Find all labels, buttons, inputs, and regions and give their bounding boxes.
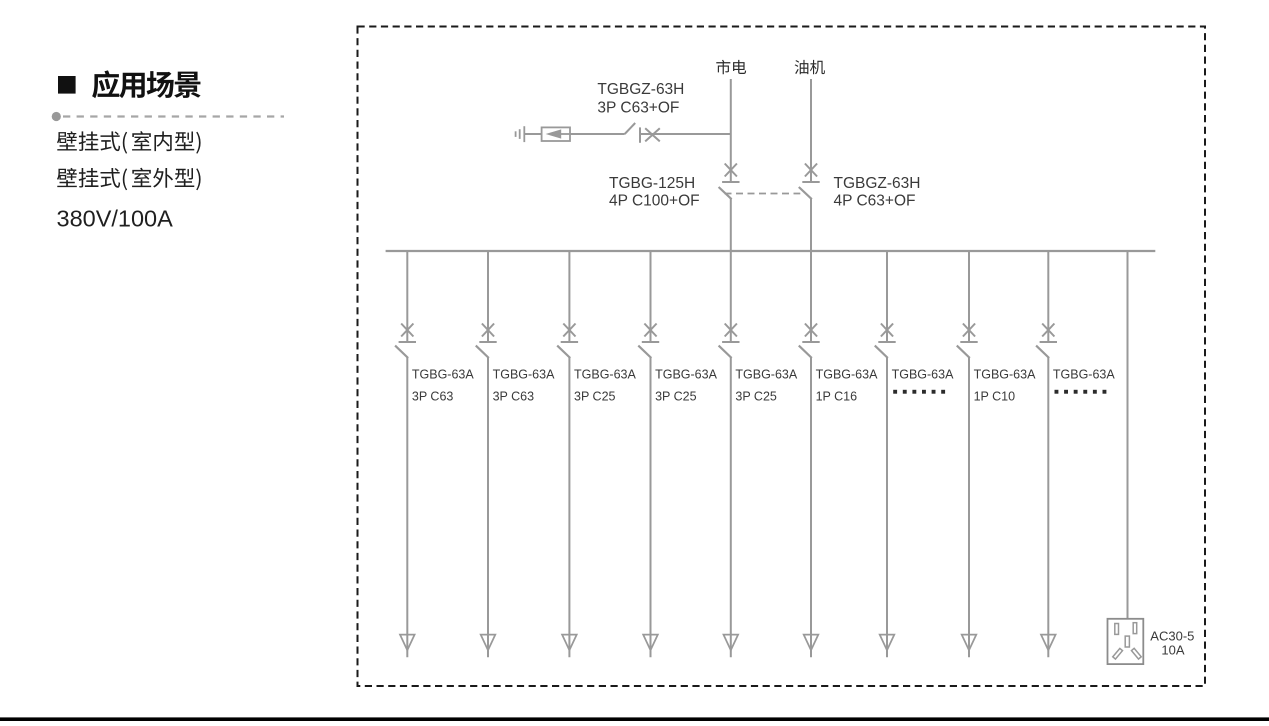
svg-text:4P C100+OF: 4P C100+OF — [609, 193, 700, 210]
svg-text:3P C63+OF: 3P C63+OF — [597, 100, 679, 117]
svg-text:TGBG-63A: TGBG-63A — [412, 367, 474, 381]
svg-text:1P C10: 1P C10 — [974, 389, 1016, 403]
svg-text:3P C25: 3P C25 — [655, 389, 697, 403]
svg-text:TGBG-63A: TGBG-63A — [735, 367, 797, 381]
svg-text:3P C25: 3P C25 — [574, 389, 616, 403]
svg-text:TGBG-63A: TGBG-63A — [493, 367, 555, 381]
svg-text:TGBG-63A: TGBG-63A — [574, 367, 636, 381]
svg-text:TGBGZ-63H: TGBGZ-63H — [597, 81, 684, 98]
svg-text:380V/100A: 380V/100A — [57, 205, 174, 231]
svg-text:TGBG-63A: TGBG-63A — [655, 367, 717, 381]
svg-text:1P C16: 1P C16 — [816, 389, 858, 403]
svg-text:3P C25: 3P C25 — [735, 389, 777, 403]
svg-text:3P C63: 3P C63 — [412, 389, 454, 403]
svg-text:TGBG-63A: TGBG-63A — [1053, 367, 1115, 381]
svg-text:TGBG-63A: TGBG-63A — [816, 367, 878, 381]
svg-text:10A: 10A — [1161, 643, 1184, 658]
svg-text:3P C63: 3P C63 — [493, 389, 535, 403]
svg-text:AC30-5: AC30-5 — [1150, 629, 1194, 644]
svg-text:TGBG-125H: TGBG-125H — [609, 175, 695, 192]
svg-text:TGBG-63A: TGBG-63A — [892, 367, 954, 381]
svg-text:TGBG-63A: TGBG-63A — [974, 367, 1036, 381]
svg-text:4P C63+OF: 4P C63+OF — [834, 192, 916, 209]
svg-text:TGBGZ-63H: TGBGZ-63H — [834, 175, 921, 192]
